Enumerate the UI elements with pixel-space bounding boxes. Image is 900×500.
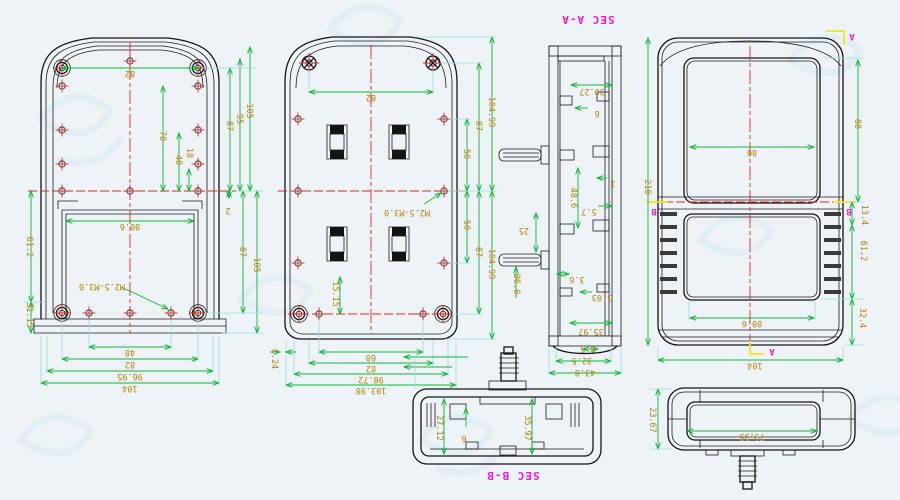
thread-note: M2.5-M3.0 bbox=[384, 207, 430, 217]
dim-134: 13.4 bbox=[859, 205, 869, 225]
dim-82: 82 bbox=[366, 92, 376, 102]
view-base-interior: 82 78 48 18 87 95 105 2 87 105 48 82 96.… bbox=[24, 38, 263, 393]
dim-2712: 27.12 bbox=[434, 415, 444, 441]
dim-bottom-9695: 96.95 bbox=[117, 371, 143, 381]
dim-window-806: 80.6 bbox=[120, 221, 140, 231]
dim-1515: 15.15 bbox=[330, 281, 340, 307]
dim-3597: 35.97 bbox=[578, 326, 604, 336]
dim-2: 2 bbox=[225, 205, 230, 215]
snap-slots bbox=[327, 125, 409, 261]
marker-b-right: B bbox=[846, 206, 852, 216]
secaa-dimension-labels: 25 Ø6.0 30.27 6 1 48.6 5.7 3.6 3.03 35.9… bbox=[511, 86, 616, 377]
dim-105-upper: 105 bbox=[244, 103, 254, 118]
right-wall-hatch bbox=[612, 46, 621, 346]
dim-105-lower: 105 bbox=[251, 257, 261, 272]
section-bb-view: 27.12 6 35.97 SEC B-B bbox=[404, 347, 601, 482]
dim-210: 210 bbox=[642, 179, 652, 194]
dim-18: 18 bbox=[184, 148, 194, 158]
dim-36: 3.6 bbox=[569, 274, 584, 284]
dim-10499-lower: 104.99 bbox=[486, 249, 496, 280]
marker-a-top: A bbox=[849, 31, 855, 41]
view-front: A A B B 210 88 13.4 61.2 32.4 80 80.6 10… bbox=[642, 31, 869, 370]
section-aa-view: SEC A-A 25 Ø6 bbox=[499, 13, 621, 377]
dim-82-bottom: 82 bbox=[366, 363, 376, 373]
dim-87-lower: 87 bbox=[473, 247, 483, 257]
dim-3115: 31.15 bbox=[24, 302, 34, 328]
dim-95: 95 bbox=[234, 114, 244, 124]
dim-9872: 98.72 bbox=[358, 374, 384, 384]
dim-3027: 30.27 bbox=[579, 86, 605, 96]
view2-dimension-labels: 82 50 87 104.99 50 87 104.99 60 82 98.72… bbox=[269, 92, 496, 395]
secbb-interior bbox=[427, 397, 584, 455]
dim-6: 6 bbox=[594, 108, 599, 118]
section-bb-title: SEC B-B bbox=[486, 469, 539, 482]
cad-drawing-sheet: 82 78 48 18 87 95 105 2 87 105 48 82 96.… bbox=[0, 0, 900, 500]
top-dimension-labels: 79.35 23.67 bbox=[647, 407, 765, 441]
dim-60: 60 bbox=[366, 352, 376, 362]
side-connector-upper bbox=[499, 146, 549, 164]
dim-2367: 23.67 bbox=[647, 407, 657, 433]
dim-806: 80.6 bbox=[742, 318, 762, 328]
dim-87-upper: 87 bbox=[473, 121, 483, 131]
dim-top-width: 82 bbox=[125, 68, 135, 78]
dim-88: 88 bbox=[852, 119, 862, 129]
dim-50-lower: 50 bbox=[461, 220, 471, 230]
dim-124: 1.24 bbox=[269, 349, 279, 369]
dim-10499-upper: 104.99 bbox=[486, 97, 496, 128]
dim-87-lower: 87 bbox=[237, 247, 247, 257]
dim-10398: 103.98 bbox=[356, 385, 387, 395]
dim-78: 78 bbox=[157, 131, 167, 141]
dim-bottom-82: 82 bbox=[125, 359, 135, 369]
dim-48: 48 bbox=[173, 155, 183, 165]
dim-438: 43.8 bbox=[575, 367, 595, 377]
dim-104: 104 bbox=[747, 360, 762, 370]
marker-a-bottom: A bbox=[769, 346, 775, 356]
antenna-connector-top bbox=[489, 347, 526, 390]
view-base-exterior: 82 50 87 104.99 50 87 104.99 60 82 98.72… bbox=[269, 37, 497, 395]
dim-57: 5.7 bbox=[581, 206, 596, 216]
watermark-pattern bbox=[20, 7, 900, 472]
interior-ribs bbox=[560, 92, 609, 296]
view1-dimension-labels: 82 78 48 18 87 95 105 2 87 105 48 82 96.… bbox=[24, 68, 261, 393]
view2-dimension-lines bbox=[270, 37, 497, 387]
dim-87-upper: 87 bbox=[224, 121, 234, 131]
section-aa-title: SEC A-A bbox=[561, 13, 614, 26]
dim-7935: 79.35 bbox=[739, 431, 765, 441]
dim-303: 3.03 bbox=[592, 292, 612, 302]
dim-325: 32.5 bbox=[572, 355, 592, 365]
upper-window bbox=[684, 58, 820, 203]
antenna-connector-bottom bbox=[731, 450, 764, 489]
dim-486: 48.6 bbox=[568, 188, 578, 208]
drawing-svg: 82 78 48 18 87 95 105 2 87 105 48 82 96.… bbox=[0, 0, 900, 500]
section-markers: A A B B bbox=[646, 31, 856, 356]
dim-50-upper: 50 bbox=[461, 149, 471, 159]
left-wall-hatch bbox=[549, 46, 558, 346]
dim-bottom-104: 104 bbox=[122, 383, 137, 393]
dim-80: 80 bbox=[747, 147, 757, 157]
view-top: 79.35 23.67 bbox=[647, 388, 855, 489]
dim-85: 8.5 bbox=[580, 343, 595, 353]
dim-dia60: Ø6.0 bbox=[511, 274, 522, 294]
dim-6: 6 bbox=[461, 433, 466, 443]
thread-note: M2.5-M3.0 bbox=[79, 281, 125, 291]
marker-b-left: B bbox=[651, 206, 657, 216]
dim-1: 1 bbox=[610, 178, 615, 188]
dim-3597: 35.97 bbox=[522, 415, 532, 441]
lower-window bbox=[684, 214, 820, 300]
side-connector-lower bbox=[499, 251, 549, 269]
dim-324: 32.4 bbox=[857, 308, 867, 328]
dim-612: 61.2 bbox=[858, 241, 868, 261]
dim-612: 61.2 bbox=[24, 237, 34, 257]
dim-bottom-48: 48 bbox=[125, 347, 135, 357]
dim-25: 25 bbox=[519, 225, 529, 235]
